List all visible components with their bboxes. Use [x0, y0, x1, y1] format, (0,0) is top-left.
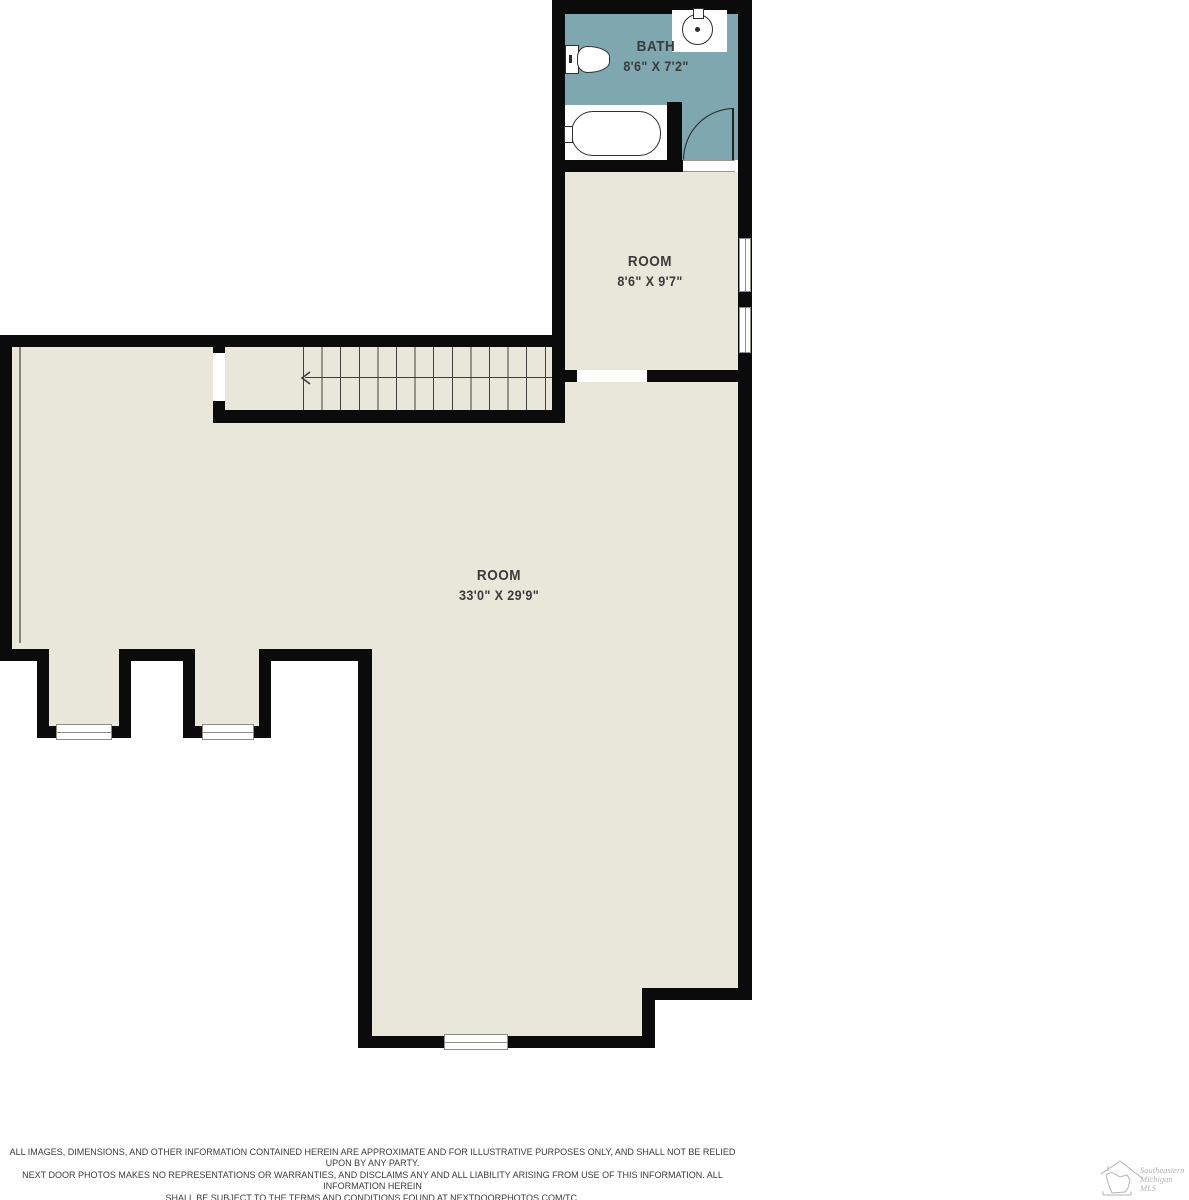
window [56, 724, 112, 740]
wall-segment [738, 0, 752, 1000]
wall-segment [2, 335, 565, 347]
wall-segment [552, 347, 565, 423]
window [739, 307, 751, 353]
wall-segment [647, 370, 738, 382]
window [202, 724, 254, 740]
wall-segment [565, 370, 577, 382]
room-name: ROOM [596, 253, 704, 270]
disclaimer-line: NEXT DOOR PHOTOS MAKES NO REPRESENTATION… [0, 1170, 745, 1193]
logo-roof-icon [1101, 1161, 1142, 1178]
stair-doorway [213, 353, 225, 401]
window [739, 238, 751, 292]
toilet-flush-dot [569, 55, 572, 63]
wall-segment [213, 410, 565, 423]
bath-door-threshold [683, 160, 735, 172]
wall-segment [552, 160, 683, 172]
disclaimer-line: SHALL BE SUBJECT TO THE TERMS AND CONDIT… [0, 1193, 745, 1200]
bay-alcove-floor-1 [49, 649, 119, 726]
large-room-floor-wing-right [645, 649, 738, 988]
logo-text: MLS [1139, 1183, 1157, 1193]
tub-faucet-icon [564, 126, 573, 143]
room-dims: 8'6" X 7'2" [602, 58, 710, 74]
left-wall-trim-line [19, 347, 21, 643]
stair-run-line [305, 377, 552, 378]
large-room-label: ROOM 33'0" X 29'9" [445, 567, 553, 603]
bath-label: BATH 8'6" X 7'2" [602, 38, 710, 74]
wall-segment [259, 649, 372, 661]
window [444, 1034, 508, 1050]
stair-treads [303, 347, 552, 410]
room-name: BATH [602, 38, 710, 55]
wall-segment [358, 649, 372, 1048]
wall-segment [213, 401, 225, 410]
bay-alcove-floor-2 [195, 649, 259, 726]
small-room-label: ROOM 8'6" X 9'7" [596, 253, 704, 289]
room-name: ROOM [445, 567, 553, 584]
room-dims: 33'0" X 29'9" [445, 587, 553, 603]
disclaimer-line: ALL IMAGES, DIMENSIONS, AND OTHER INFORM… [0, 1147, 745, 1170]
stairs [225, 347, 552, 410]
large-room-floor-wing [372, 649, 645, 1037]
small-room-doorway [577, 370, 647, 382]
mls-logo: Southeastern Michigan MLS [1096, 1156, 1188, 1200]
stair-direction-arrow [300, 370, 312, 386]
disclaimer: ALL IMAGES, DIMENSIONS, AND OTHER INFORM… [0, 1147, 745, 1200]
door-leaf [732, 108, 734, 160]
wall-segment [259, 649, 271, 738]
room-dims: 8'6" X 9'7" [596, 273, 704, 289]
wall-segment [119, 649, 131, 738]
floor-plan: BATH 8'6" X 7'2" ROOM 8'6" X 9'7" ROOM 3… [0, 0, 1189, 1200]
logo-michigan-icon [1106, 1173, 1130, 1193]
bathtub-icon [571, 111, 661, 156]
wall-segment [667, 102, 682, 172]
sink-drain-dot [695, 27, 700, 32]
wall-segment [183, 649, 195, 738]
sink-faucet-icon [693, 8, 704, 19]
wall-segment [0, 335, 12, 661]
wall-segment [37, 649, 49, 738]
wall-segment [642, 988, 752, 1000]
wall-segment [552, 0, 565, 347]
